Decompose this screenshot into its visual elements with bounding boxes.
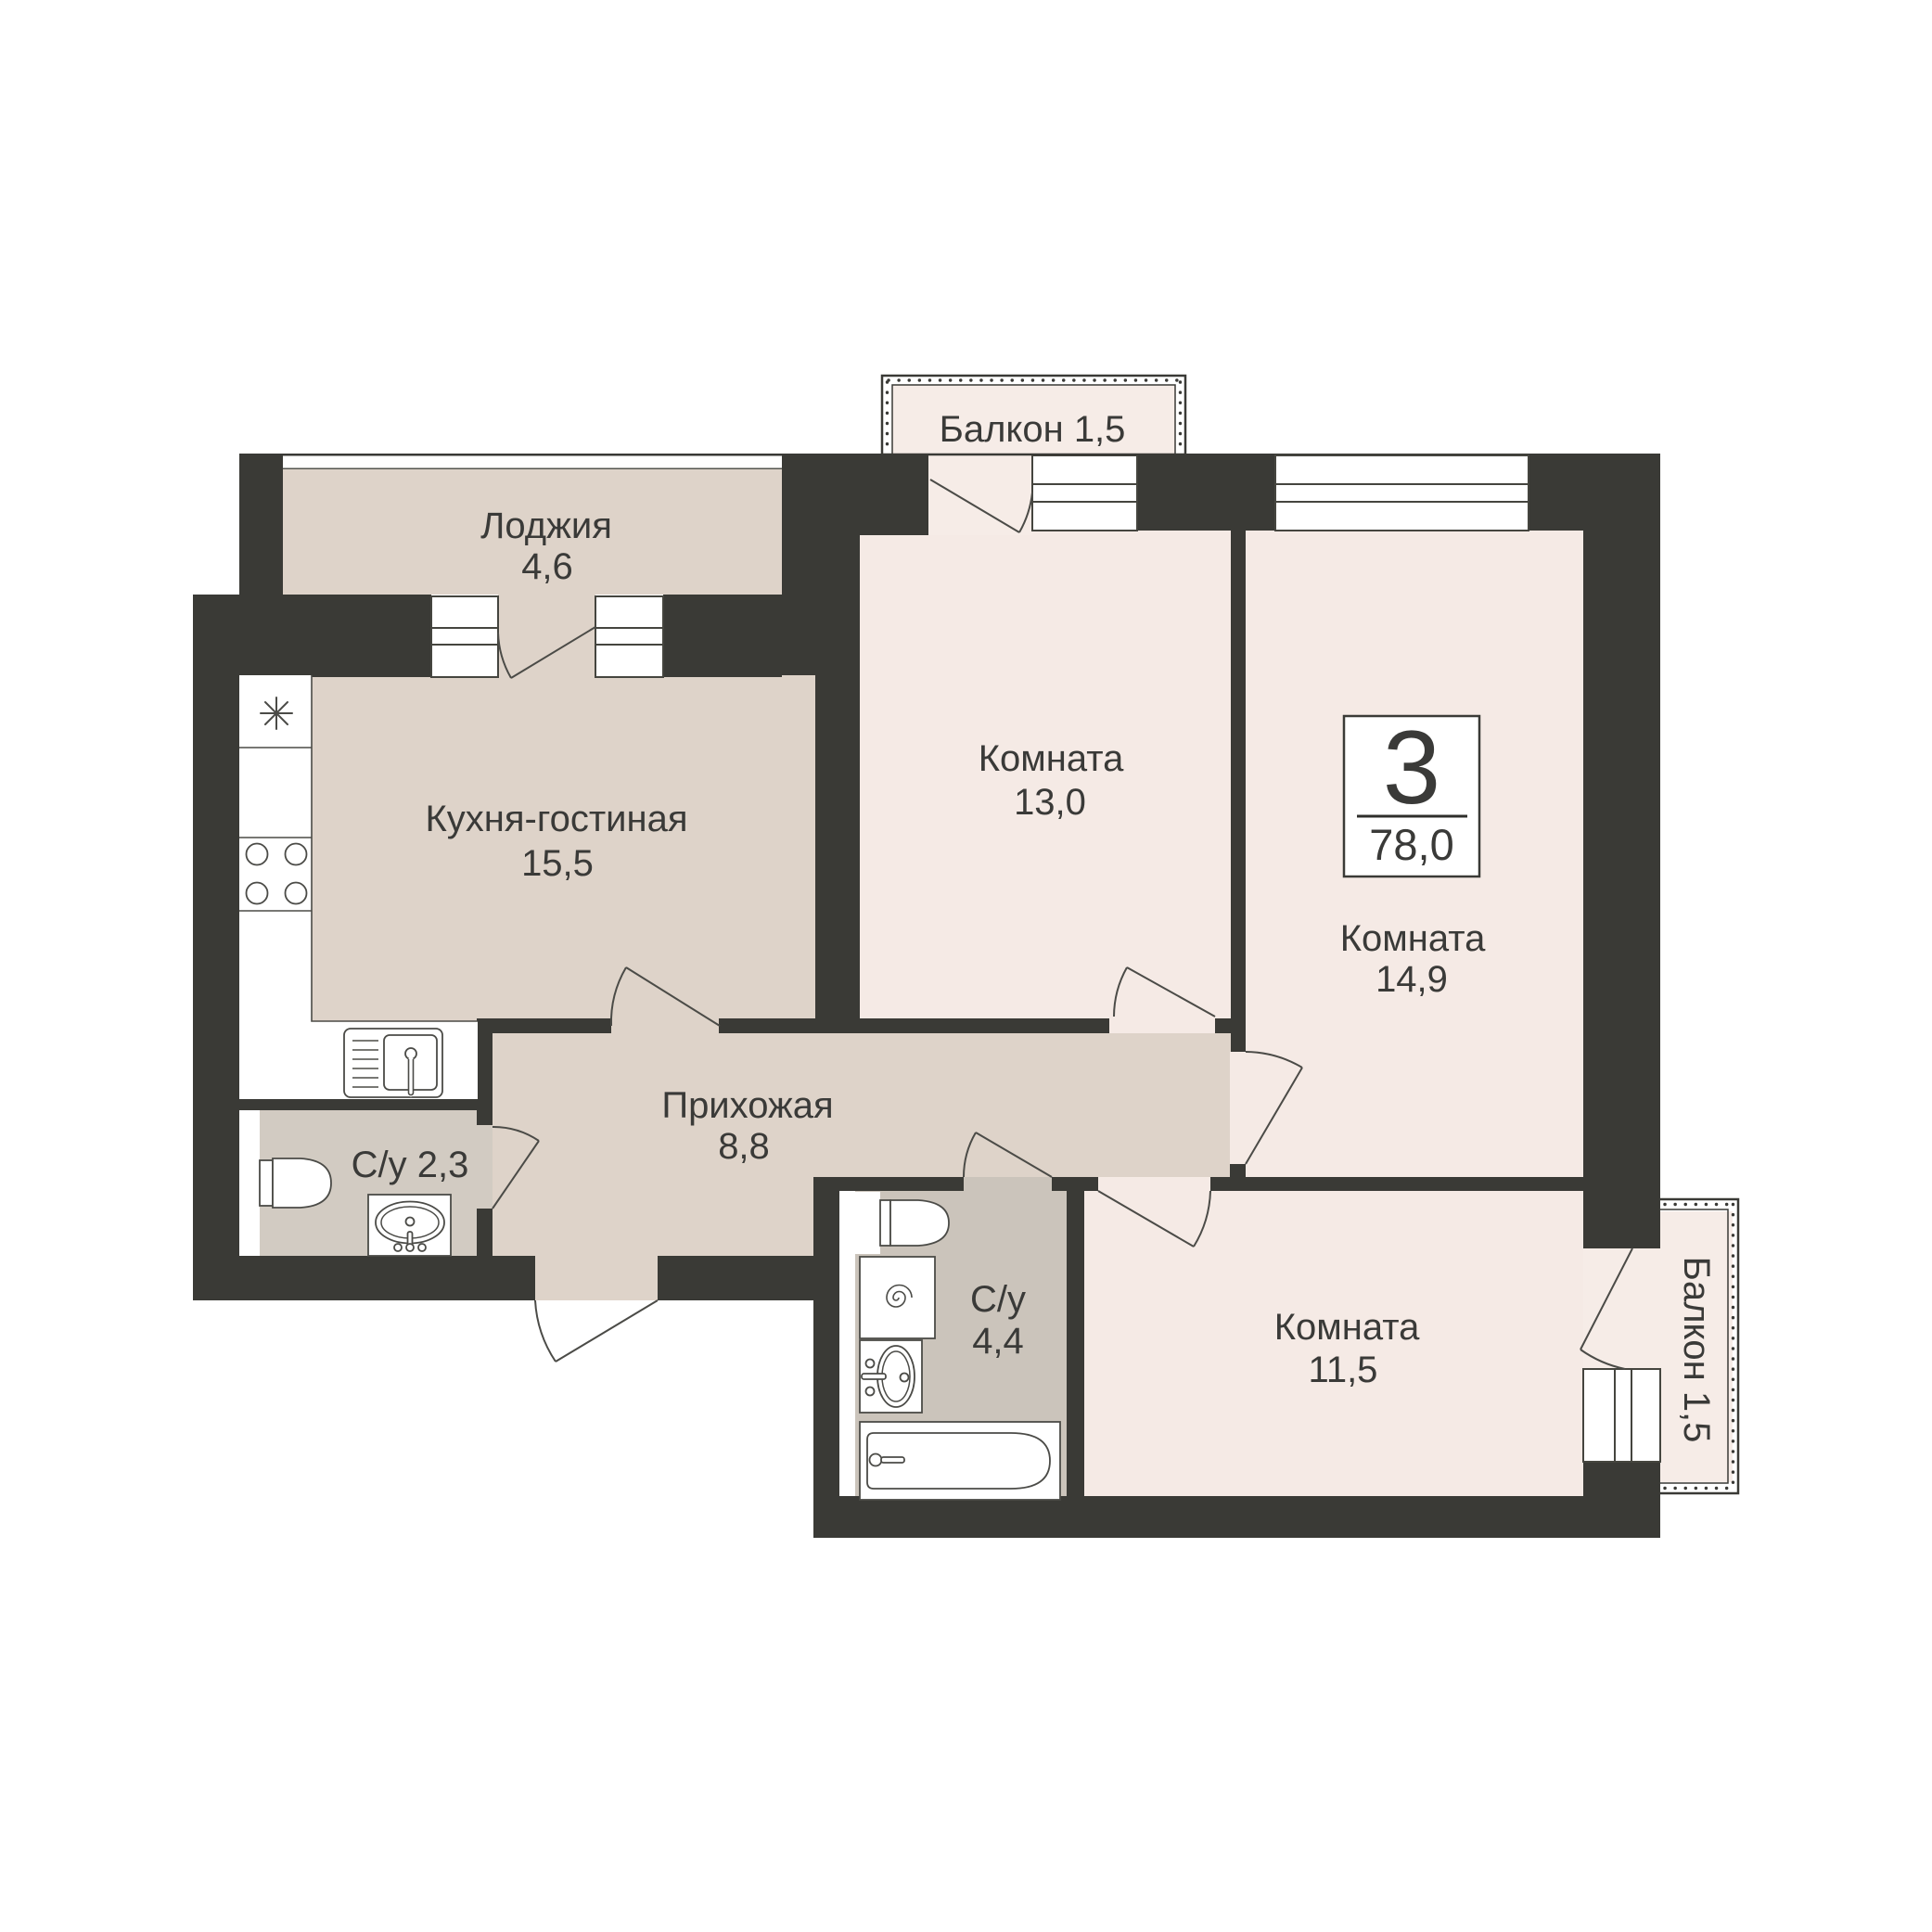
svg-text:Балкон 1,5: Балкон 1,5 [1676, 1257, 1717, 1443]
svg-text:14,9: 14,9 [1375, 959, 1448, 1000]
svg-text:Балкон 1,5: Балкон 1,5 [940, 409, 1126, 450]
svg-text:С/у 2,3: С/у 2,3 [352, 1145, 469, 1185]
svg-text:8,8: 8,8 [718, 1126, 770, 1167]
svg-text:13,0: 13,0 [1014, 782, 1086, 823]
svg-text:С/у: С/у [970, 1279, 1026, 1320]
svg-text:15,5: 15,5 [521, 843, 594, 884]
svg-text:Прихожая: Прихожая [661, 1085, 833, 1126]
svg-text:Лоджия: Лоджия [480, 505, 612, 546]
svg-text:11,5: 11,5 [1309, 1350, 1378, 1390]
svg-text:Комната: Комната [1274, 1307, 1420, 1348]
svg-text:Комната: Комната [979, 738, 1124, 779]
svg-text:4,4: 4,4 [972, 1321, 1024, 1362]
svg-text:Комната: Комната [1340, 918, 1486, 959]
svg-text:3: 3 [1383, 710, 1440, 825]
svg-text:78,0: 78,0 [1369, 820, 1453, 869]
svg-text:4,6: 4,6 [521, 546, 573, 587]
svg-text:Кухня-гостиная: Кухня-гостиная [426, 799, 688, 839]
